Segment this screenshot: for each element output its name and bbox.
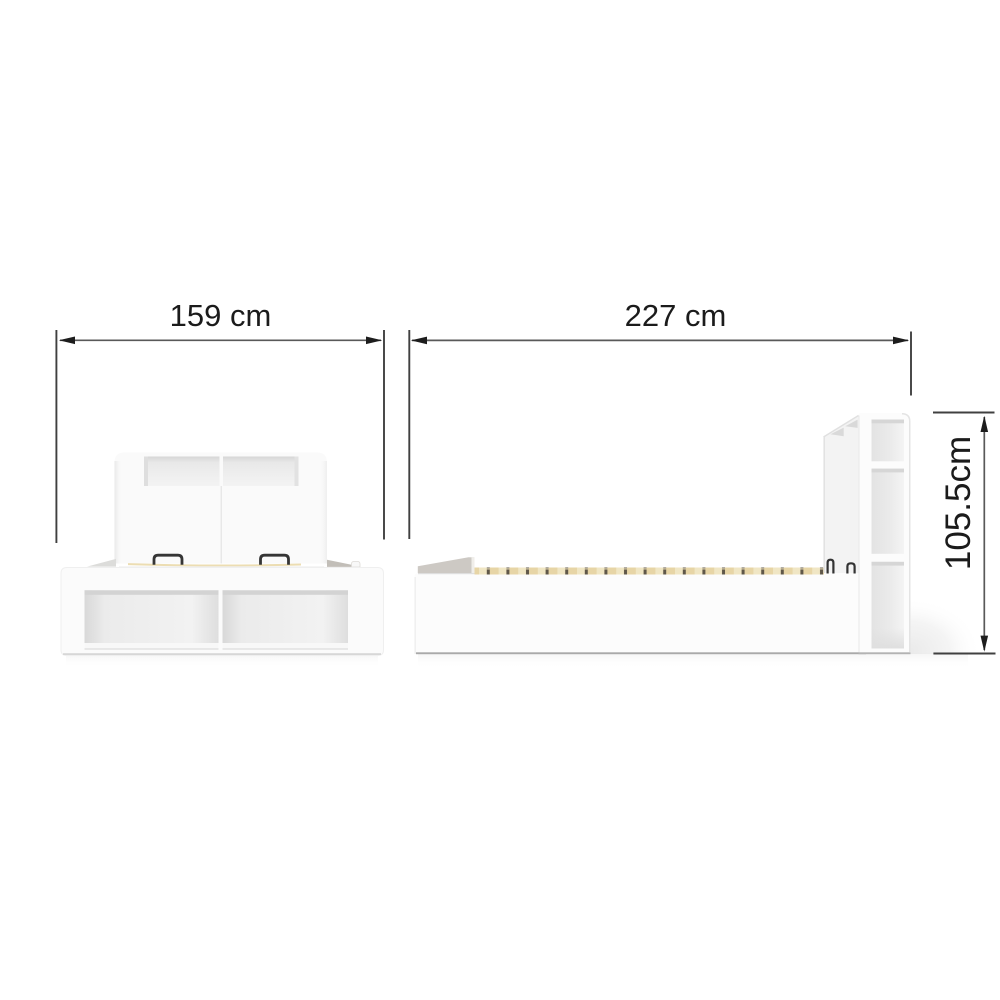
svg-text:159 cm: 159 cm [170, 298, 272, 333]
svg-text:227 cm: 227 cm [625, 298, 727, 333]
svg-text:105.5cm: 105.5cm [939, 436, 978, 570]
